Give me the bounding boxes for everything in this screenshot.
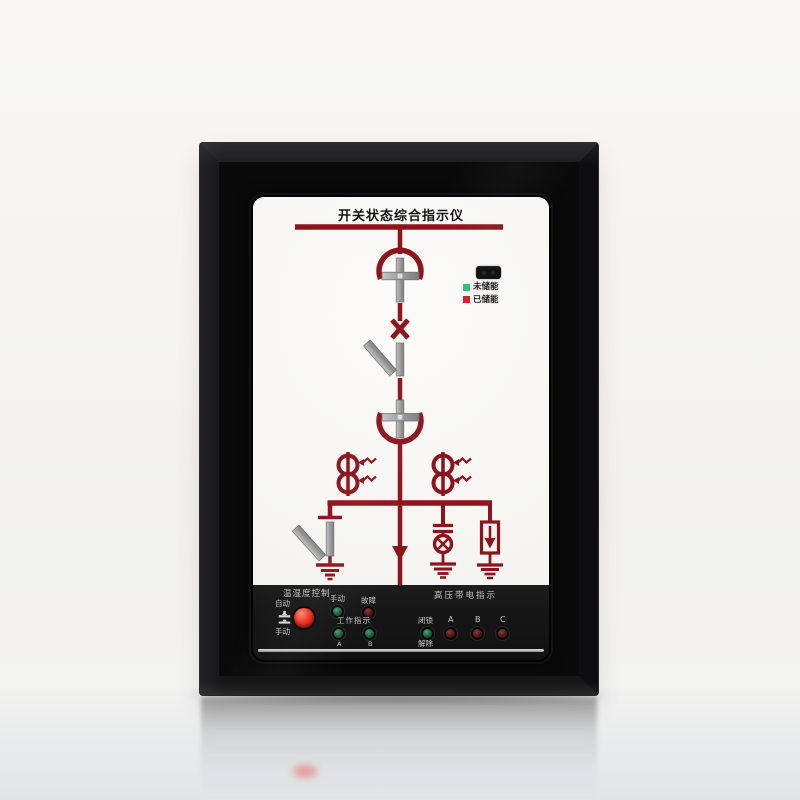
phase-a-label: A <box>448 616 453 624</box>
work-led-a <box>334 629 343 638</box>
release-label: 解除 <box>418 640 433 648</box>
phase-b-led <box>473 629 482 638</box>
current-transformer-left <box>339 452 377 496</box>
single-line-diagram <box>253 197 549 585</box>
lock-led <box>423 629 432 638</box>
legend-charged-label: 已储能 <box>473 296 499 305</box>
display-window: 开关状态综合指示仪 <box>253 197 549 660</box>
reflection-button <box>293 765 317 778</box>
disconnector-bar <box>396 343 404 376</box>
truck-position-cross-upper <box>382 258 419 302</box>
work-led-b <box>365 629 374 638</box>
charge-legend: 未储能 已储能 <box>463 266 545 304</box>
manual-label: 手动 <box>275 628 290 636</box>
earthing-switch-blade <box>292 525 325 561</box>
closed-position-x <box>392 320 408 338</box>
earth-electrode-left <box>316 565 344 579</box>
disconnector <box>363 340 403 376</box>
capacitor-divider <box>433 526 453 532</box>
feeder-arrow <box>392 546 408 561</box>
legend-red-swatch <box>463 296 470 303</box>
indicator-device: 开关状态综合指示仪 <box>200 143 598 695</box>
truck-position-cross-lower <box>382 400 419 438</box>
reflection-strip <box>215 741 583 744</box>
surge-arrester-branch <box>477 503 503 578</box>
window-led-dot <box>482 271 486 275</box>
device-front-face: 开关状态综合指示仪 <box>219 162 579 676</box>
earth-electrode-middle <box>430 564 456 578</box>
manual-led <box>333 607 342 616</box>
fault-led-label: 故障 <box>361 597 376 605</box>
lock-label: 闭锁 <box>418 617 433 625</box>
product-photo-scene: 开关状态综合指示仪 <box>0 0 800 800</box>
work-a-label: A <box>337 641 341 648</box>
disconnector-blade <box>363 340 396 376</box>
auto-label: 自动 <box>275 600 290 608</box>
control-panel: 温湿度控制 自动 手动 手动 故障 <box>253 585 549 660</box>
phase-a-led <box>446 629 455 638</box>
legend-green-swatch <box>463 284 470 291</box>
window-led-dot <box>491 271 495 275</box>
earth-electrode-right <box>477 565 503 578</box>
manual-led-label: 手动 <box>330 595 345 603</box>
earthing-switch-bar <box>326 522 334 556</box>
phase-c-label: C <box>500 616 506 624</box>
mimic-display-screen: 开关状态综合指示仪 <box>253 197 549 585</box>
temp-humidity-label: 温湿度控制 <box>283 590 331 599</box>
panel-trim-strip <box>258 649 544 652</box>
phase-b-label: B <box>475 616 481 624</box>
legend-display-window <box>476 266 501 279</box>
legend-row-not-charged: 未储能 <box>463 283 545 292</box>
earthing-switch <box>292 522 334 561</box>
voltage-indicator-branch <box>430 503 456 578</box>
temp-control-push-button[interactable] <box>294 608 314 628</box>
phase-c-led <box>498 629 507 638</box>
legend-not-charged-label: 未储能 <box>473 283 499 292</box>
work-b-label: B <box>368 641 372 648</box>
current-transformer-right <box>434 452 472 496</box>
legend-row-charged: 已储能 <box>463 296 545 305</box>
auto-manual-switch-icon[interactable] <box>278 609 291 626</box>
work-indicator-label: 工作指示 <box>337 617 371 625</box>
hv-live-indicator-label: 高压带电指示 <box>434 592 497 601</box>
device-reflection <box>201 697 597 800</box>
